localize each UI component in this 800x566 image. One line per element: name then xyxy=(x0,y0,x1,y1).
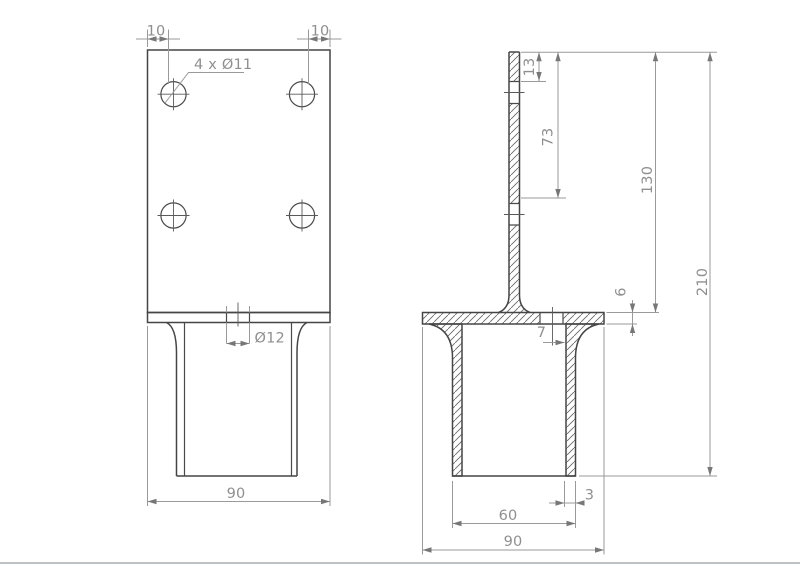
front-view: 10 10 4 x Ø11 Ø12 90 xyxy=(136,24,342,507)
dim-edge-offset-right: 10 xyxy=(297,24,342,85)
base-hole-edges xyxy=(540,313,563,325)
front-base-plate xyxy=(148,313,331,323)
center-cross-marks xyxy=(158,78,319,326)
dim-base-thickness-value: 6 xyxy=(614,287,630,296)
bolt-holes xyxy=(158,78,319,326)
dim-hole-to-wall: 7 xyxy=(537,325,565,345)
dim-top-to-hole1-value: 13 xyxy=(522,58,538,77)
tube-left-fillet-edge xyxy=(167,323,177,477)
leader-line xyxy=(165,73,244,104)
dim-overall-height: 210 xyxy=(579,52,717,476)
dim-top-to-hole2-value: 73 xyxy=(541,128,557,147)
dim-base-width-value: 90 xyxy=(504,534,523,550)
dim-edge-offset-left: 10 xyxy=(136,24,180,85)
dim-base-thickness: 6 xyxy=(607,287,638,336)
section-upright-plate xyxy=(499,52,531,313)
tube-right-fillet-edge xyxy=(297,323,307,477)
dim-plate-height: 130 xyxy=(607,52,660,312)
section-tube-walls xyxy=(429,324,599,476)
upright-left-edge xyxy=(499,52,510,313)
technical-drawing-page: 10 10 4 x Ø11 Ø12 90 xyxy=(0,0,800,566)
dim-wall-thickness-value: 3 xyxy=(585,488,594,504)
holes-note-value: 4 x Ø11 xyxy=(194,57,252,73)
dim-edge-offset-left-value: 10 xyxy=(147,24,166,40)
section-view: 13 73 130 210 6 xyxy=(423,52,718,555)
technical-drawing-canvas: 10 10 4 x Ø11 Ø12 90 xyxy=(0,0,800,566)
dim-overall-height-value: 210 xyxy=(695,268,711,296)
dim-base-hole-value: Ø12 xyxy=(255,331,285,347)
dim-plate-width: 90 xyxy=(148,326,331,506)
upright-right-edge xyxy=(520,52,531,313)
front-tube xyxy=(167,323,308,477)
dim-top-to-hole1: 13 xyxy=(521,52,546,81)
dim-edge-offset-right-value: 10 xyxy=(311,24,330,40)
holes-leader-note: 4 x Ø11 xyxy=(165,57,252,103)
dim-plate-width-value: 90 xyxy=(227,486,246,502)
dim-tube-width-value: 60 xyxy=(499,508,518,524)
dim-wall-thickness: 3 xyxy=(549,481,594,507)
dim-plate-height-value: 130 xyxy=(640,166,656,194)
dim-hole-to-wall-value: 7 xyxy=(537,325,546,341)
